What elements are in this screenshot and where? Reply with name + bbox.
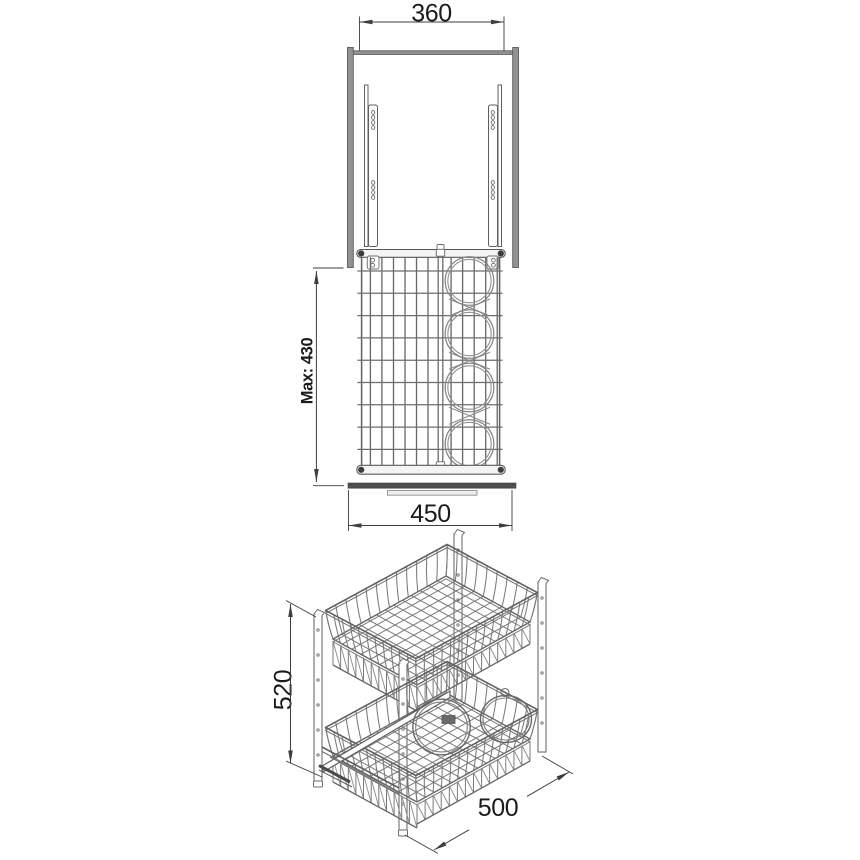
svg-text:Max: 430: Max: 430 <box>298 338 316 405</box>
svg-text:360: 360 <box>411 0 452 28</box>
svg-text:500: 500 <box>478 794 519 822</box>
svg-text:520: 520 <box>270 670 298 711</box>
svg-text:450: 450 <box>410 500 451 528</box>
